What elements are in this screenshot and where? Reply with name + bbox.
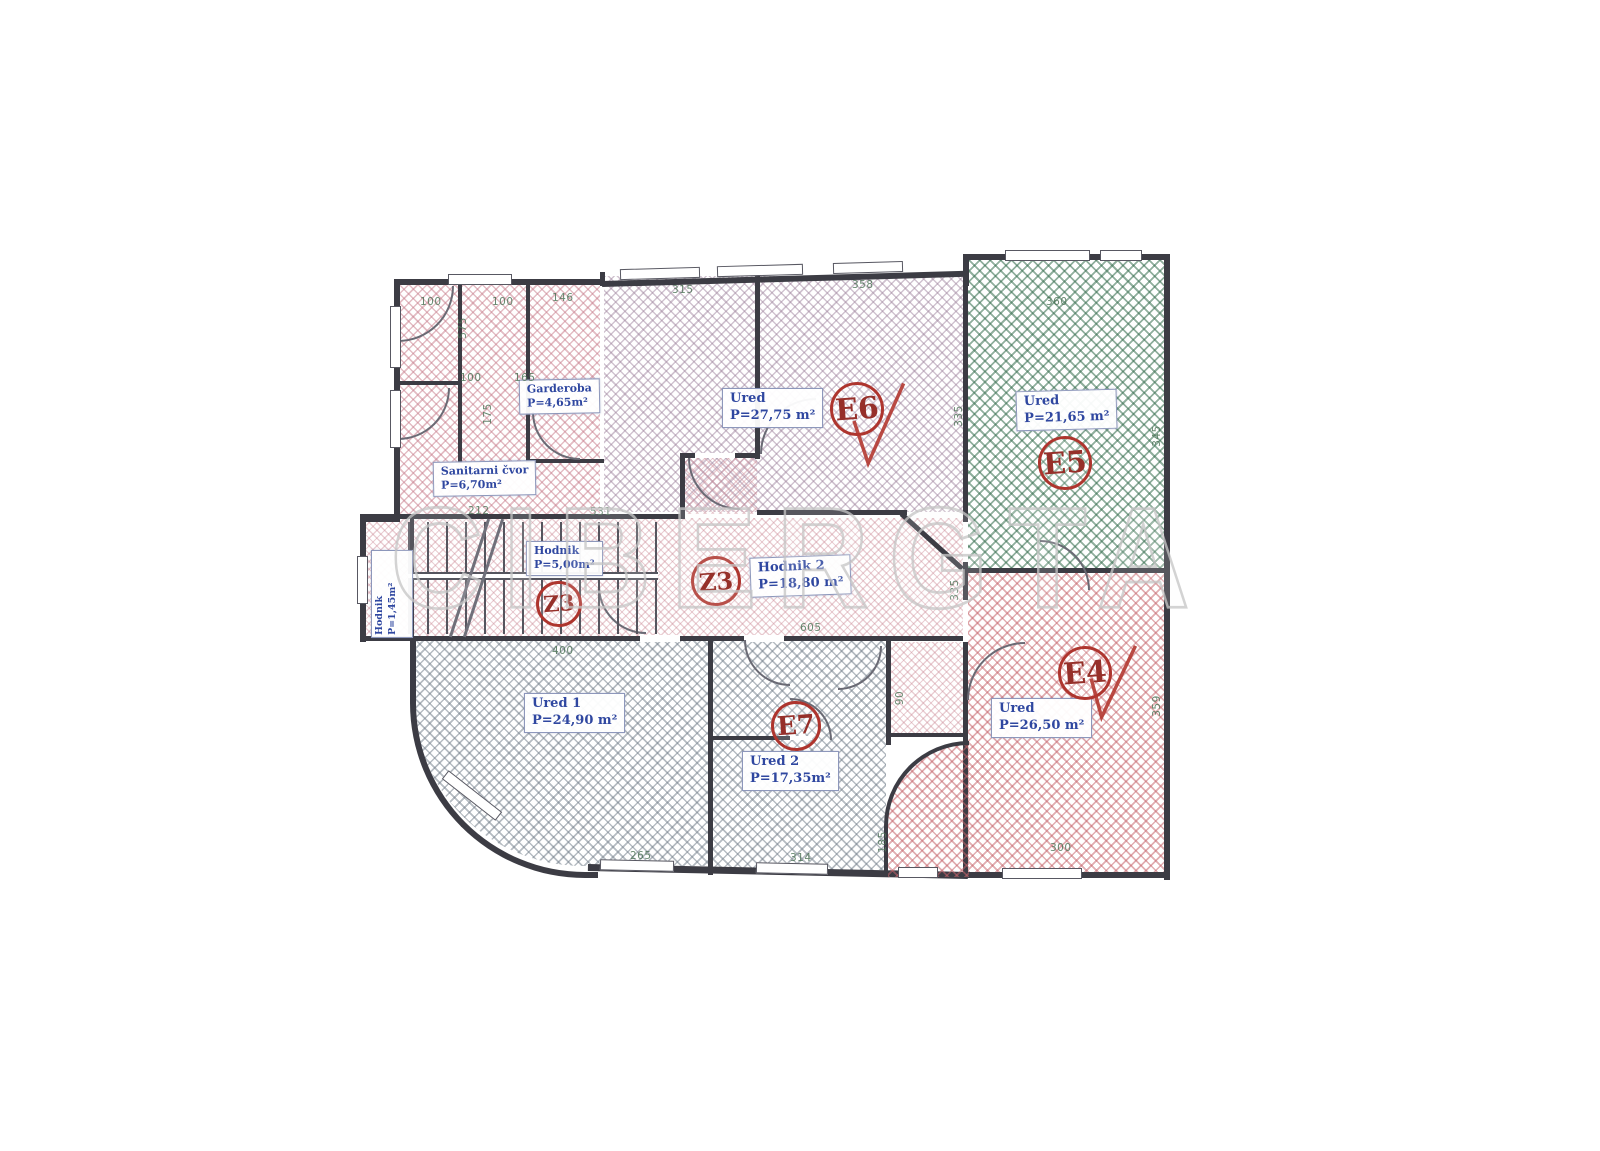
wall	[708, 638, 713, 875]
room-area: P=1,45m²	[387, 553, 399, 635]
floor-plan: Garderoba P=4,65m² Sanitarni čvor P=6,70…	[0, 0, 1600, 1151]
dimension-label: 400	[552, 645, 574, 657]
dimension-label: 335	[953, 405, 965, 427]
door-opening	[963, 600, 968, 642]
room-label-hodnik3: Hodnik P=1,45m²	[371, 550, 413, 638]
dimension-label: 531	[590, 506, 612, 518]
unit-marker-text: E5	[1042, 444, 1088, 482]
dimension-label: 265	[630, 850, 652, 862]
window	[357, 556, 368, 604]
window	[898, 867, 938, 878]
room-area: P=18,80 m²	[758, 574, 844, 594]
dimension-label: 358	[852, 279, 874, 291]
unit-marker-text: Z3	[542, 590, 575, 618]
room-label-ured2: Ured 2 P=17,35m²	[742, 751, 839, 791]
window	[390, 306, 401, 368]
room-label-ured-e5: Ured P=21,65 m²	[1015, 389, 1117, 431]
wall	[755, 274, 760, 459]
dimension-label: 314	[790, 852, 812, 864]
window	[390, 390, 401, 448]
room-name: Ured	[999, 701, 1084, 718]
unit-marker-text: E7	[776, 710, 816, 743]
room-area: P=26,50 m²	[999, 718, 1084, 735]
room-name: Hodnik	[374, 553, 386, 635]
room-area: P=17,35m²	[750, 771, 831, 788]
window	[1005, 250, 1090, 261]
dimension-label: 100	[460, 372, 482, 384]
unit-marker-text: Z3	[698, 565, 734, 596]
dimension-label: 185	[877, 831, 889, 853]
room-area: P=24,90 m²	[532, 713, 617, 730]
room-label-sanitarni: Sanitarni čvor P=6,70m²	[433, 460, 537, 496]
wall	[757, 510, 907, 515]
wall	[396, 381, 458, 385]
door-opening	[963, 522, 968, 562]
dimension-label: 335	[949, 579, 961, 601]
room-name: Garderoba	[527, 381, 592, 396]
window	[833, 261, 903, 274]
room-name: Sanitarni čvor	[441, 463, 529, 479]
dimension-label: 345	[1151, 425, 1163, 447]
dimension-label: 100	[420, 296, 442, 308]
room-area: P=27,75 m²	[730, 408, 815, 425]
room-label-hodnik1: Hodnik P=5,00m²	[526, 541, 603, 576]
dimension-label: 300	[1050, 842, 1072, 854]
room-fill-wc-strip	[890, 642, 963, 733]
window	[620, 267, 700, 280]
window	[448, 274, 512, 285]
door-opening	[640, 635, 680, 642]
dimension-label: 360	[1046, 296, 1068, 308]
room-label-hodnik2: Hodnik 2 P=18,80 m²	[749, 554, 852, 597]
wall	[680, 455, 685, 519]
room-name: Hodnik	[534, 544, 595, 558]
dimension-label: 605	[800, 622, 822, 634]
window	[1002, 868, 1082, 879]
room-area: P=4,65m²	[527, 396, 592, 411]
room-name: Ured	[730, 391, 815, 408]
curved-interior-wall	[884, 741, 969, 877]
curved-outer-wall	[410, 640, 598, 878]
room-area: P=6,70m²	[441, 478, 529, 494]
window	[756, 862, 828, 875]
wall	[526, 459, 604, 463]
room-label-ured1: Ured 1 P=24,90 m²	[524, 693, 625, 733]
room-name: Ured 2	[750, 754, 831, 771]
wall	[1164, 254, 1170, 880]
dimension-label: 315	[672, 284, 694, 296]
dimension-label: 175	[482, 403, 494, 425]
wall	[360, 514, 685, 519]
dimension-label: 359	[1151, 695, 1163, 717]
room-label-ured-e6: Ured P=27,75 m²	[722, 388, 823, 428]
room-area: P=5,00m²	[534, 558, 595, 572]
dimension-label: 100	[492, 296, 514, 308]
room-name: Ured 1	[532, 696, 617, 713]
dimension-label: 146	[552, 292, 574, 304]
room-area: P=21,65 m²	[1024, 409, 1110, 428]
wall	[886, 638, 891, 745]
dimension-label: 90	[894, 691, 906, 705]
room-label-ured-e4: Ured P=26,50 m²	[991, 698, 1092, 738]
dimension-label: 212	[468, 505, 490, 517]
window	[1100, 250, 1142, 261]
dimension-label: 575	[457, 317, 469, 339]
dimension-label: 165	[514, 372, 536, 384]
wall	[886, 733, 965, 737]
